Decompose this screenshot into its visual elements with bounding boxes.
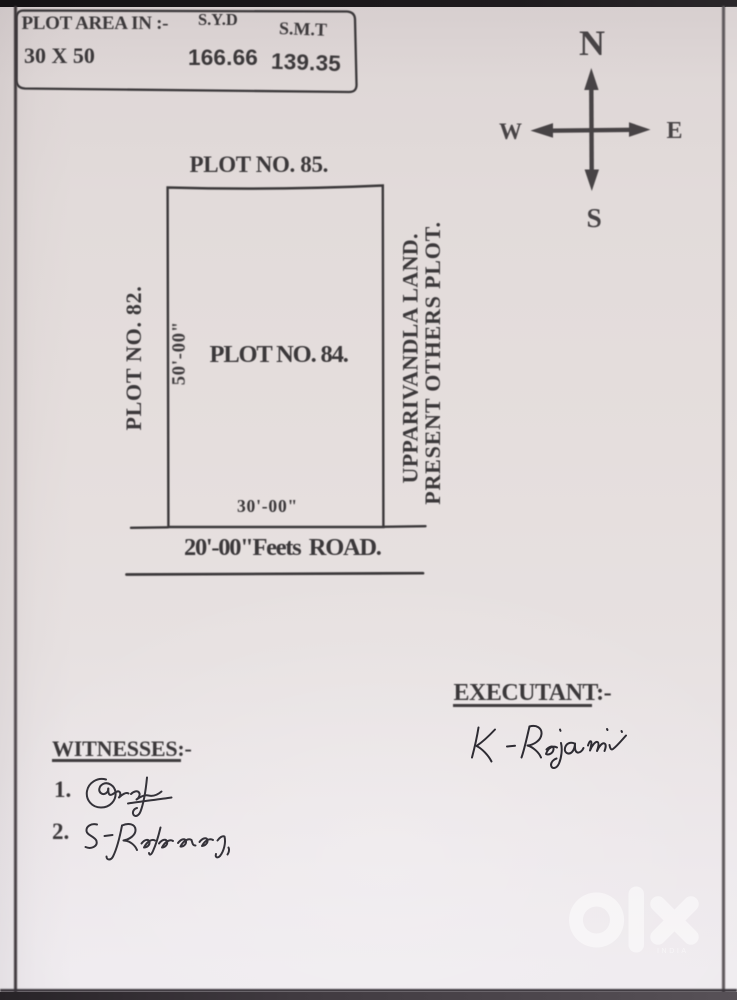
svg-text:INDIA: INDIA [657, 948, 689, 955]
